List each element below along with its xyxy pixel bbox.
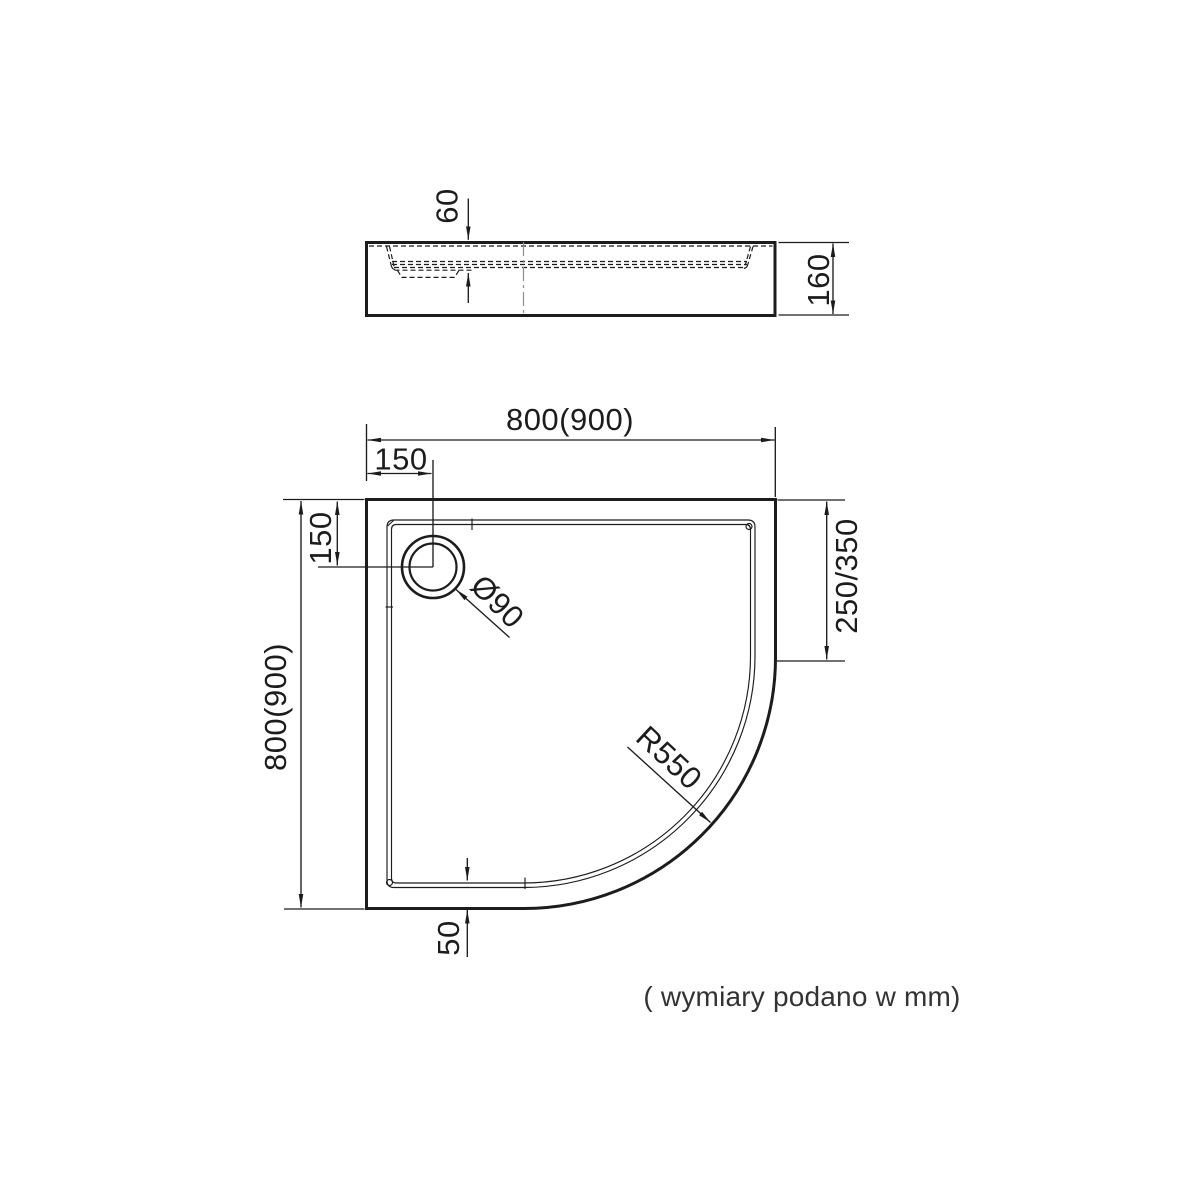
dimension-width-800-900: 800(900) [367, 402, 776, 497]
plan-view: 800(900) 150 150 800(900) 250/350 [258, 402, 864, 957]
dimension-drain-offset-left-150: 150 [303, 502, 338, 566]
side-drain-recess-hidden [398, 270, 460, 277]
shower-tray-technical-drawing: 60 160 800(900) [0, 0, 1200, 1200]
drawing-canvas: 60 160 800(900) [0, 0, 1200, 1200]
dim-label-right-edge: 250/350 [829, 518, 864, 634]
dim-label-rim-bottom: 50 [431, 920, 466, 955]
dim-label-drain-offset-left: 150 [303, 511, 338, 564]
side-view: 60 160 [367, 188, 850, 316]
dim-label-drain-diameter: Ø90 [464, 568, 531, 635]
dimension-drain-offset-top-150: 150 [368, 442, 432, 477]
dim-label-width: 800(900) [506, 402, 634, 437]
dimension-height-160: 160 [779, 243, 850, 316]
leader-corner-radius: R550 [628, 719, 711, 822]
dim-label-height: 160 [801, 253, 836, 306]
plan-outline [367, 500, 776, 909]
dim-label-drain-offset-top: 150 [374, 442, 427, 477]
leader-drain-diameter: Ø90 [456, 568, 531, 638]
rim-corner-detail [746, 524, 752, 530]
side-view-outline [367, 243, 776, 316]
dimension-right-edge-250-350: 250/350 [777, 500, 865, 661]
units-note: ( wymiary podano w mm) [643, 981, 960, 1012]
dim-label-depth: 60 [430, 188, 465, 223]
rim-inner-edge-inner [392, 525, 751, 884]
dim-label-plan-height: 800(900) [258, 643, 293, 771]
rim-inner-edge-outer [387, 520, 755, 888]
